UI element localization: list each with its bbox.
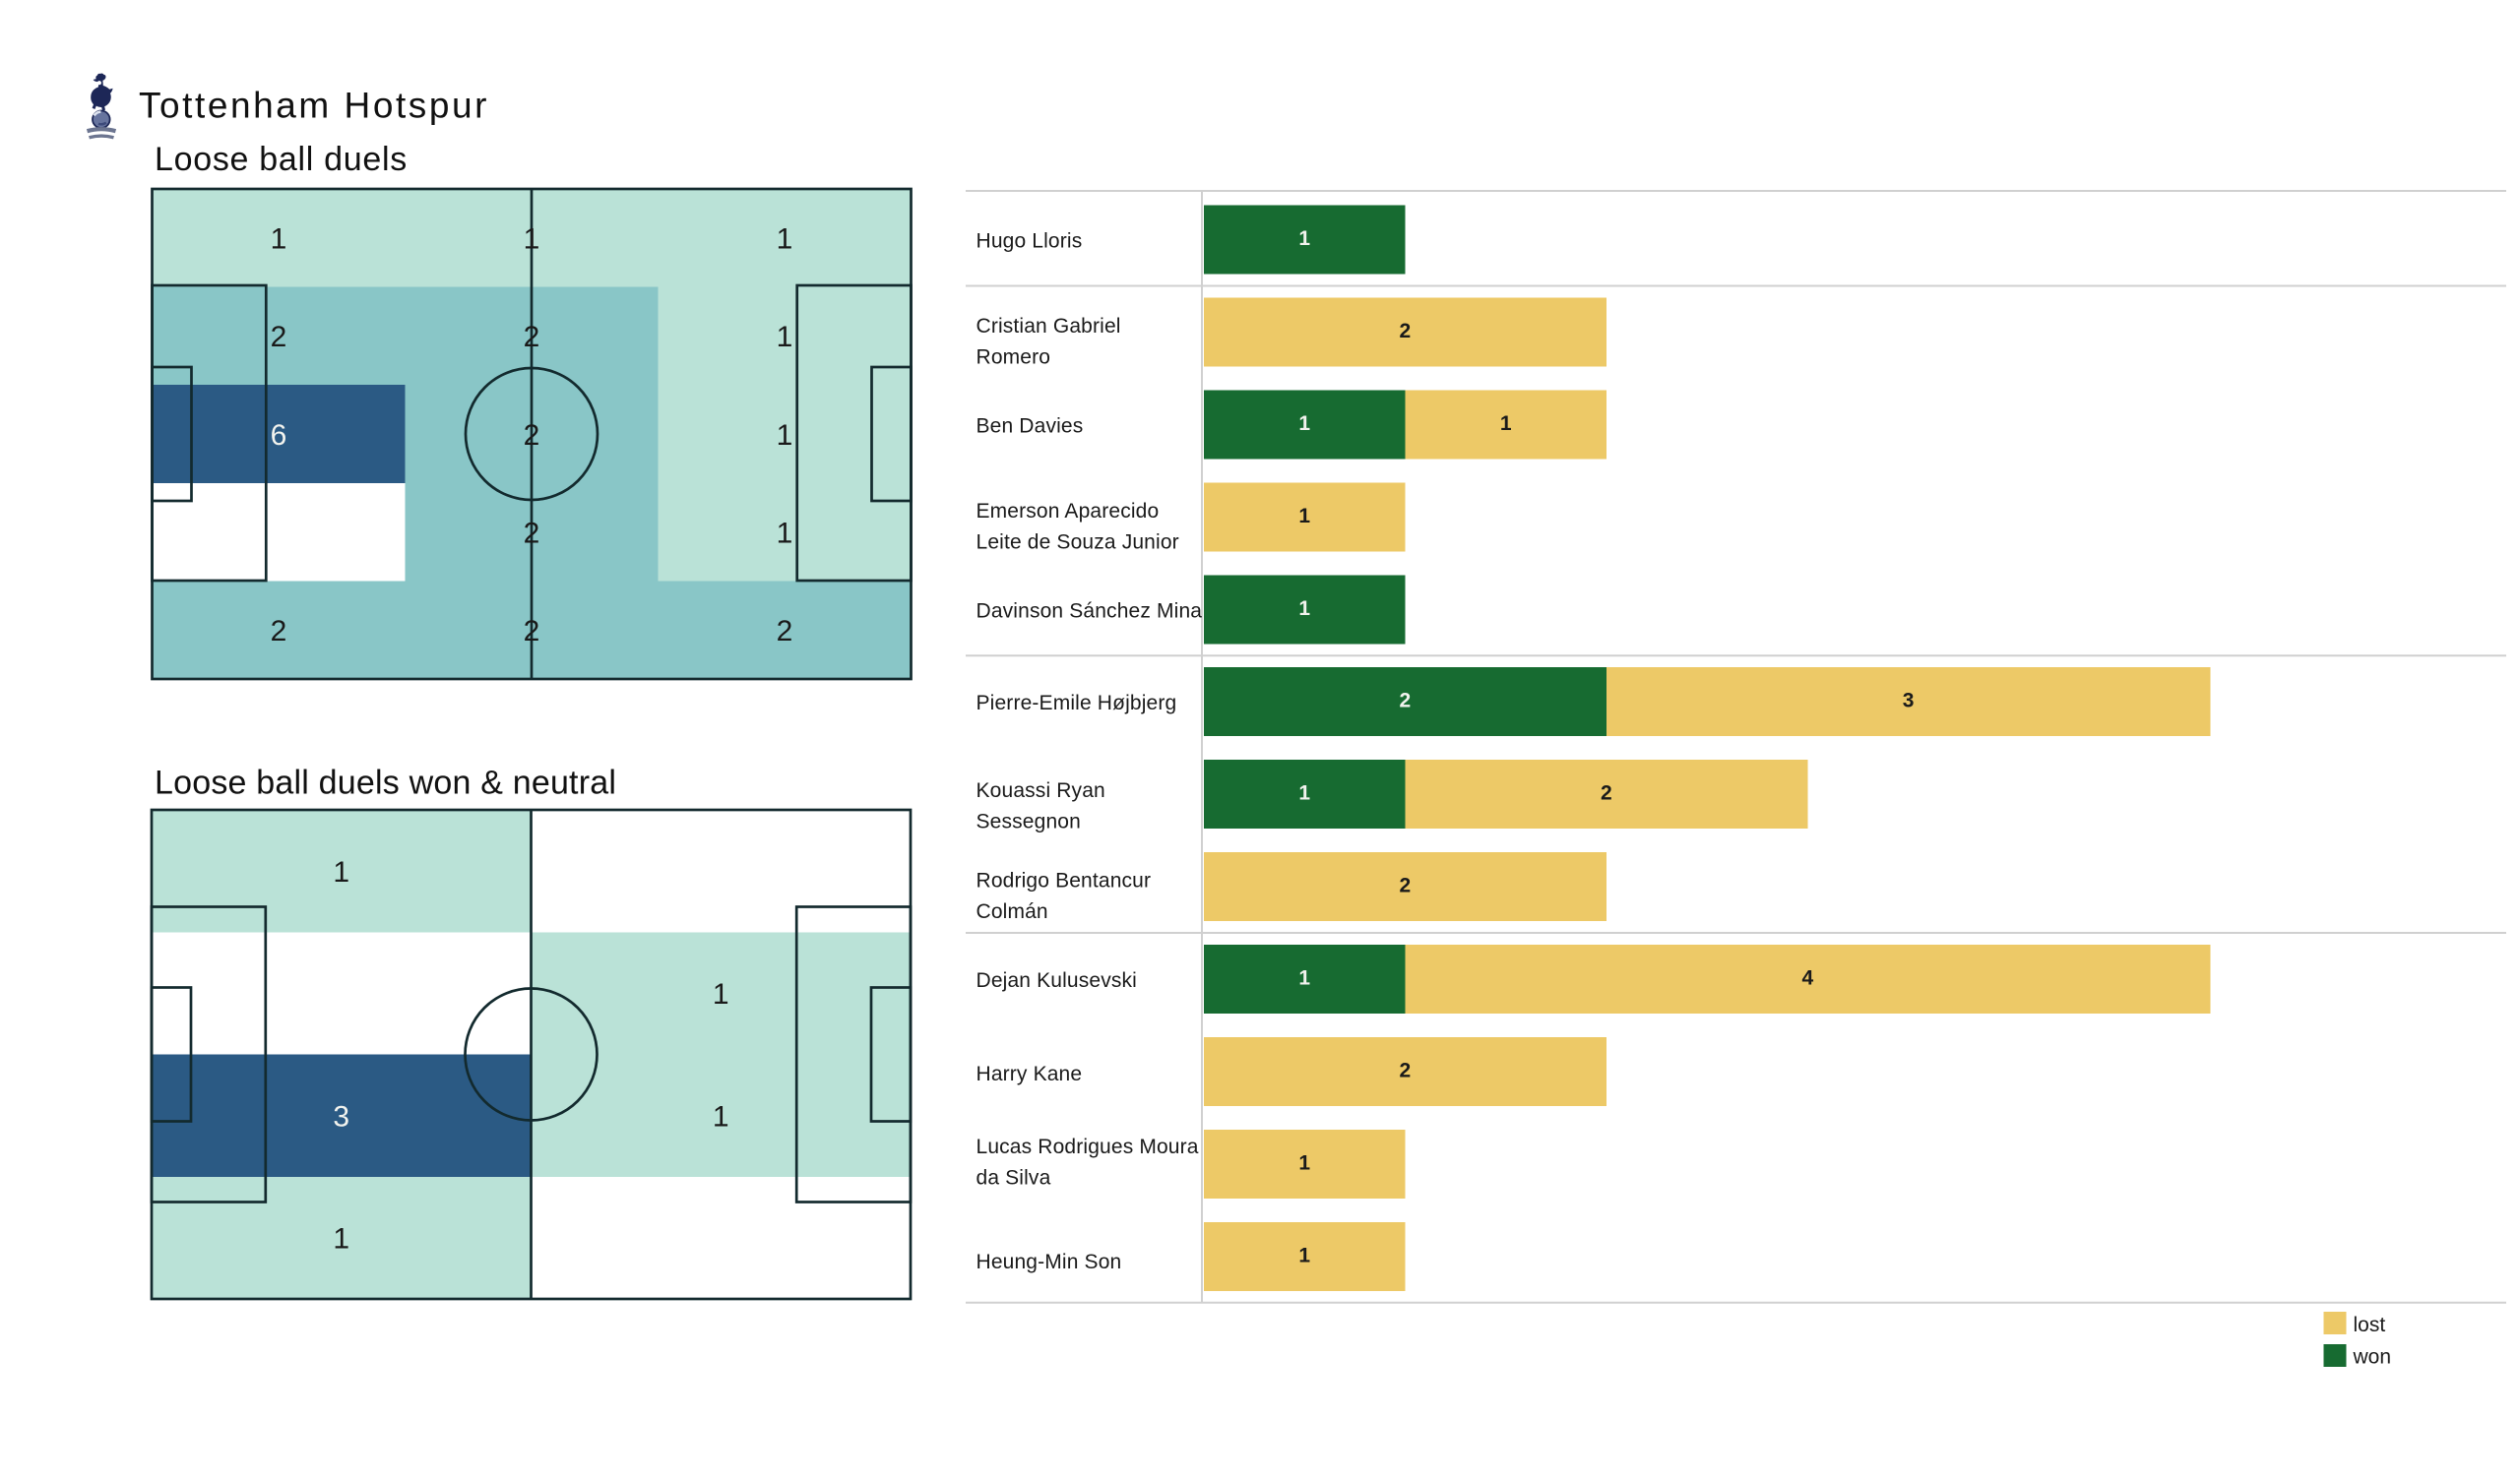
svg-text:4: 4: [1801, 967, 1813, 990]
svg-text:Davinson Sánchez Mina: Davinson Sánchez Mina: [976, 599, 1203, 622]
svg-text:1: 1: [524, 223, 540, 256]
svg-text:1: 1: [1298, 505, 1310, 527]
svg-text:2: 2: [1400, 875, 1412, 897]
svg-text:1: 1: [1298, 597, 1310, 620]
svg-text:Sessegnon: Sessegnon: [976, 811, 1081, 833]
svg-text:2: 2: [1400, 320, 1412, 342]
svg-text:1: 1: [777, 517, 793, 549]
svg-text:Emerson Aparecido: Emerson Aparecido: [976, 500, 1160, 523]
svg-text:1: 1: [1298, 1244, 1310, 1266]
svg-text:Leite de Souza Junior: Leite de Souza Junior: [976, 530, 1179, 553]
svg-text:2: 2: [524, 615, 540, 647]
svg-text:3: 3: [333, 1100, 349, 1133]
svg-text:2: 2: [1400, 1060, 1412, 1082]
svg-text:1: 1: [1298, 227, 1310, 250]
svg-text:Dejan Kulusevski: Dejan Kulusevski: [976, 969, 1137, 992]
svg-text:1: 1: [271, 223, 287, 256]
svg-text:Cristian Gabriel: Cristian Gabriel: [976, 315, 1121, 338]
svg-text:Hugo Lloris: Hugo Lloris: [976, 230, 1083, 253]
svg-text:3: 3: [1903, 690, 1915, 712]
svg-text:Heung-Min Son: Heung-Min Son: [976, 1251, 1122, 1273]
svg-text:2: 2: [777, 615, 793, 647]
svg-text:2: 2: [271, 615, 287, 647]
svg-text:1: 1: [777, 321, 793, 353]
svg-text:2: 2: [524, 321, 540, 353]
svg-text:Lucas Rodrigues Moura: Lucas Rodrigues Moura: [976, 1136, 1199, 1158]
svg-text:1: 1: [1298, 412, 1310, 435]
svg-text:1: 1: [1298, 967, 1310, 990]
svg-text:1: 1: [333, 1223, 349, 1256]
svg-text:Loose ball duels won & neutral: Loose ball duels won & neutral: [155, 764, 616, 801]
svg-text:Colmán: Colmán: [976, 900, 1048, 923]
svg-text:Loose ball duels: Loose ball duels: [155, 141, 408, 178]
svg-text:2: 2: [1601, 782, 1612, 805]
svg-text:1: 1: [777, 419, 793, 452]
svg-text:da Silva: da Silva: [976, 1167, 1051, 1190]
svg-text:Harry Kane: Harry Kane: [976, 1063, 1083, 1085]
svg-text:Tottenham Hotspur: Tottenham Hotspur: [139, 85, 489, 125]
svg-text:1: 1: [333, 856, 349, 889]
svg-text:lost: lost: [2354, 1314, 2386, 1336]
svg-text:6: 6: [271, 419, 287, 452]
svg-text:Rodrigo Bentancur: Rodrigo Bentancur: [976, 870, 1152, 893]
svg-text:2: 2: [1400, 690, 1412, 712]
svg-text:1: 1: [713, 978, 729, 1011]
svg-text:Kouassi Ryan: Kouassi Ryan: [976, 779, 1105, 802]
svg-text:2: 2: [524, 517, 540, 549]
svg-text:won: won: [2353, 1346, 2392, 1369]
svg-text:1: 1: [1500, 412, 1512, 435]
svg-text:1: 1: [1298, 782, 1310, 805]
svg-text:2: 2: [271, 321, 287, 353]
svg-text:1: 1: [777, 223, 793, 256]
svg-text:Ben Davies: Ben Davies: [976, 414, 1084, 437]
svg-text:Romero: Romero: [976, 345, 1051, 368]
svg-text:1: 1: [1298, 1151, 1310, 1174]
svg-text:2: 2: [524, 419, 540, 452]
svg-text:Pierre-Emile Højbjerg: Pierre-Emile Højbjerg: [976, 692, 1177, 714]
svg-text:1: 1: [713, 1100, 729, 1133]
